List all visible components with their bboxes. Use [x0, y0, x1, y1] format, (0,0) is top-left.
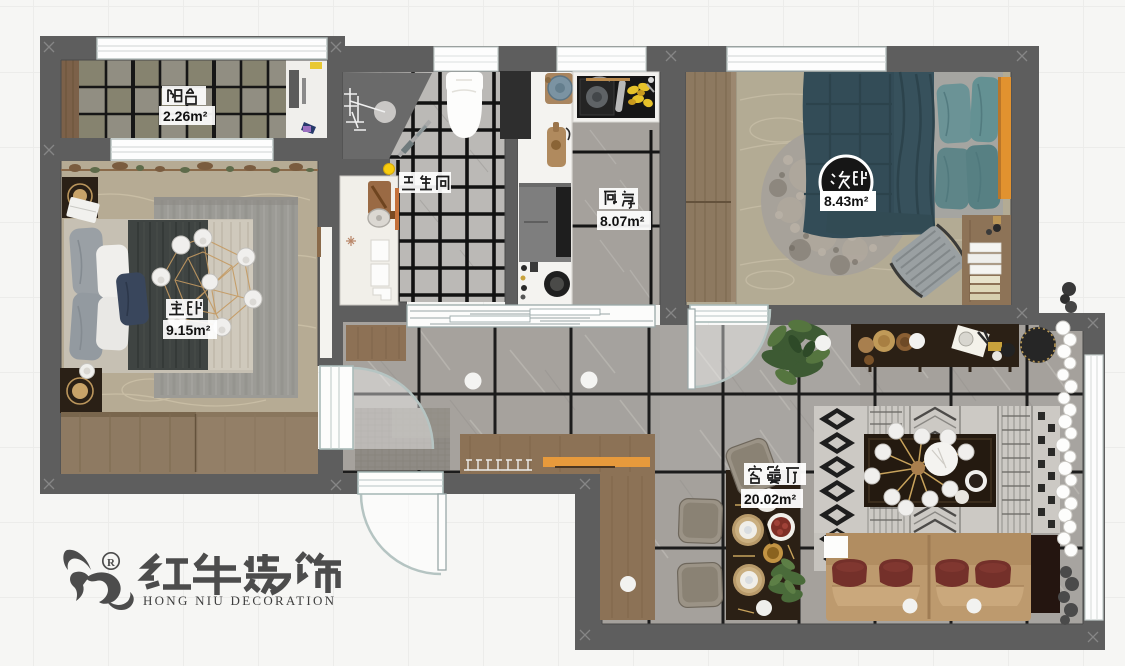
svg-text:8.07m²: 8.07m² — [600, 213, 645, 229]
svg-text:20.02m²: 20.02m² — [744, 491, 796, 507]
svg-text:2.26m²: 2.26m² — [163, 108, 208, 124]
svg-text:9.15m²: 9.15m² — [166, 322, 211, 338]
svg-text:R: R — [107, 557, 116, 569]
svg-text:HONG NIU DECORATION: HONG NIU DECORATION — [143, 593, 335, 608]
svg-text:8.43m²: 8.43m² — [824, 193, 869, 209]
